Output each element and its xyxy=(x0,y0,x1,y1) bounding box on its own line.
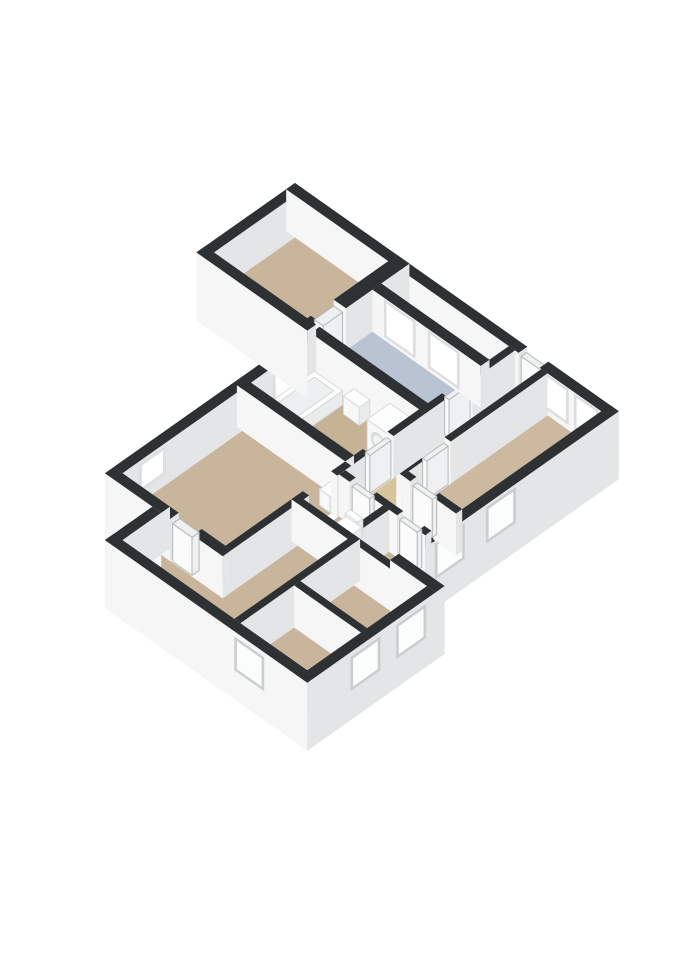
floor-plan-canvas xyxy=(0,0,679,960)
floor-plan-3d-render xyxy=(0,0,679,960)
